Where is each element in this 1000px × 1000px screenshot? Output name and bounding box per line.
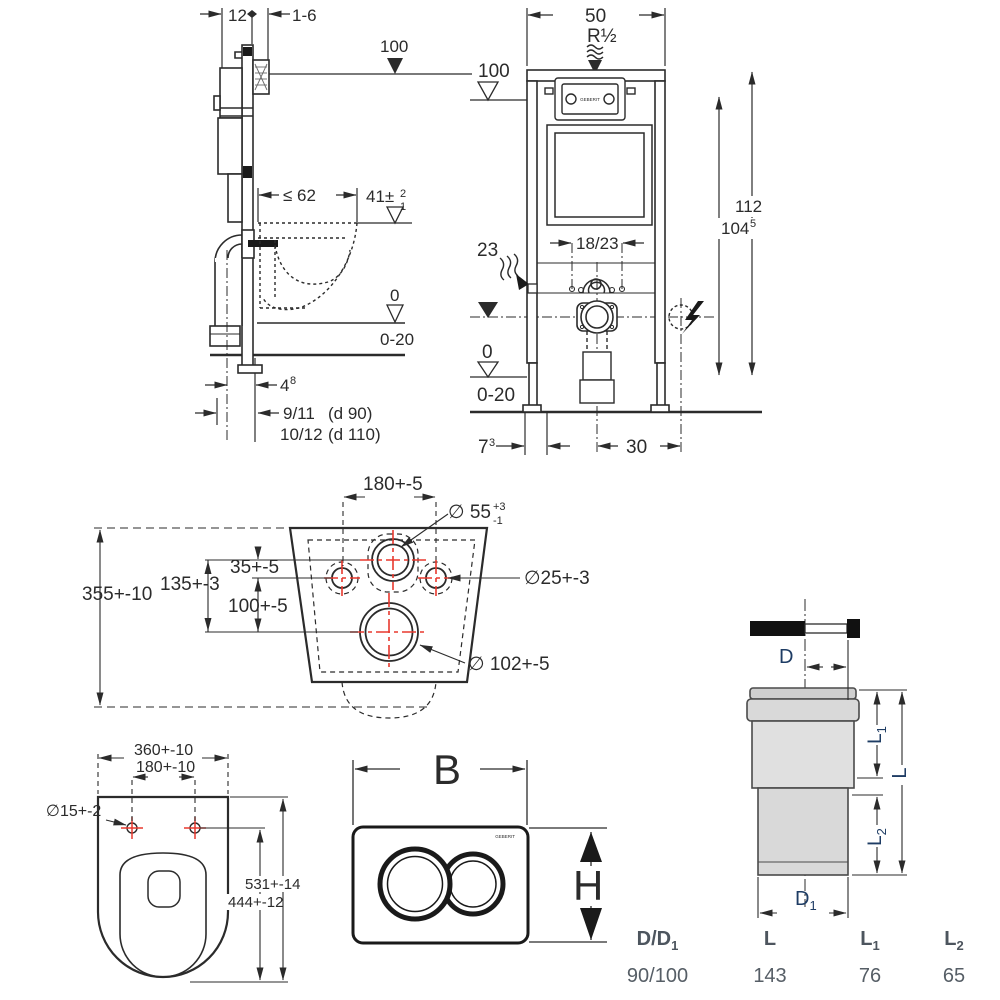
level-0-label: 0: [482, 342, 493, 363]
table-value-l: 143: [715, 965, 825, 988]
table-header-l2: L2: [915, 928, 993, 953]
bowl-plan-outline: [98, 797, 228, 977]
technical-drawing-sheet: 12 1-6 100 ≤ 62 41± 2 1 0 0-20 4 8 9/11 …: [0, 0, 1000, 1000]
dim-d25: ∅25+-3: [524, 568, 590, 589]
front-drain-flange: [577, 301, 617, 333]
table-value-dd1: 90/100: [600, 965, 715, 988]
dim-drain-b: 10/12: [280, 425, 323, 444]
plate-height-label: H: [573, 862, 603, 909]
dim-drain-b-note: (d 110): [328, 425, 381, 444]
frame-logo: GEBERIT: [580, 97, 600, 102]
front-cistern: [537, 125, 655, 293]
dim-plate-height: 104: [721, 219, 749, 238]
label-l1: L1: [865, 726, 889, 744]
label-d1: D1: [795, 888, 817, 913]
dim-135: 135+-3: [160, 574, 220, 595]
dim-electrical-offset: 30: [626, 437, 647, 458]
level-100-open-triangle: [478, 82, 498, 100]
dim-d55-sup: +3: [493, 501, 506, 513]
dim-length-holes: 444+-12: [228, 894, 283, 911]
dim-hinge-hole: ∅15+-2: [46, 803, 101, 820]
dim-frame-depth: 12: [228, 6, 247, 25]
seat-hinge-recess: [148, 871, 180, 907]
dim-diamond-marker: [247, 10, 257, 18]
rear-view-diagram: 180+-5 ∅ 55 +3 -1 355+-10 35+-5 135+-3 1…: [80, 460, 620, 730]
front-centerlines: [470, 243, 715, 452]
h-arrow-down: [580, 908, 602, 940]
dim-drain-height: 23: [477, 240, 498, 261]
floor-range-label: 0-20: [477, 385, 515, 406]
table-value-l1: 76: [825, 965, 915, 988]
side-bowl-dashed: [258, 223, 357, 310]
dim-plate-height-sup: 5: [750, 218, 756, 230]
dim-supply-range: 18/23: [576, 234, 619, 253]
level-23-filled-triangle: [478, 302, 498, 318]
plan-dim-lines: [98, 754, 288, 982]
label-l: L: [889, 767, 911, 778]
dim-offset-sup: 8: [290, 375, 296, 387]
dim-35: 35+-5: [230, 557, 279, 578]
bowl-rear-hidden-lines: [308, 534, 475, 718]
label-l2: L2: [865, 828, 889, 846]
front-view-diagram: GEBERIT 50 R: [470, 0, 790, 460]
outlet-bend-diagram: D L1 L L2 D1: [735, 585, 1000, 925]
dim-d55: ∅ 55: [448, 502, 491, 523]
large-flush-button: [380, 849, 450, 919]
connector-rod: [750, 619, 860, 638]
dim-drain-a-note: (d 90): [328, 404, 372, 423]
dim-drain-a: 9/11: [283, 404, 315, 423]
dim-offset: 4: [280, 376, 289, 395]
plate-width-label: B: [433, 746, 461, 793]
level-100-filled-triangle: [387, 58, 403, 74]
supply-squiggle: [500, 254, 518, 280]
level-0-open-triangle: [478, 362, 498, 377]
label-d: D: [779, 646, 793, 668]
dim-width: 360+-10: [134, 742, 193, 759]
bowl-connector-bar: [248, 240, 278, 247]
dim-frame-width: 50: [585, 6, 606, 27]
pipe-body: [747, 688, 859, 875]
floor-range-label: 0-20: [380, 330, 414, 349]
outlet-dimension-table: D/D1 L L1 L2 90/100 143 76 65: [600, 928, 996, 988]
table-header-l1: L1: [825, 928, 915, 953]
dim-100: 100+-5: [228, 596, 288, 617]
level-0-open-triangle: [387, 305, 403, 322]
plate-logo: GEBERIT: [495, 834, 515, 839]
flush-plate-diagram: GEBERIT B H: [345, 740, 630, 990]
side-drain-elbow: [210, 235, 242, 346]
dim-wall-gap: 1-6: [292, 6, 317, 25]
water-inlet-squiggle: [587, 45, 603, 59]
top-view-diagram: 360+-10 180+-10 ∅15+-2 531+-14 444+-12: [40, 730, 340, 1000]
dim-hinge-spacing: 180+-10: [136, 759, 195, 776]
dim-hole-spacing: 180+-5: [363, 474, 423, 495]
dim-bowl-depth: ≤ 62: [283, 186, 316, 205]
dim-bowl-height-sup: 2: [400, 188, 406, 200]
h-arrow-up: [580, 832, 602, 862]
side-view-diagram: 12 1-6 100 ≤ 62 41± 2 1 0 0-20 4 8 9/11 …: [180, 0, 480, 455]
table-header-dd1: D/D1: [600, 928, 715, 953]
dim-bowl-height: 41±: [366, 187, 394, 206]
dim-side-offset: 7: [478, 437, 489, 458]
dim-length-total: 531+-14: [245, 876, 300, 893]
hinge-holes: [121, 817, 206, 839]
dim-side-offset-sup: 3: [489, 437, 495, 449]
dim-overall: 355+-10: [82, 584, 152, 605]
dim-d55-sub: -1: [493, 515, 503, 527]
level-100-label: 100: [380, 37, 408, 56]
flush-buttons: [380, 849, 503, 919]
inlet-thread-label: R½: [587, 26, 617, 47]
dim-d102: ∅ 102+-5: [468, 654, 550, 675]
level-0-label: 0: [390, 286, 399, 305]
table-value-l2: 65: [915, 965, 993, 988]
supply-socket: [528, 284, 537, 293]
dim-bowl-height-sub: 1: [400, 201, 406, 213]
level-100-label: 100: [478, 61, 510, 82]
table-header-l: L: [715, 928, 825, 953]
dim-total-height: 112: [735, 197, 762, 216]
